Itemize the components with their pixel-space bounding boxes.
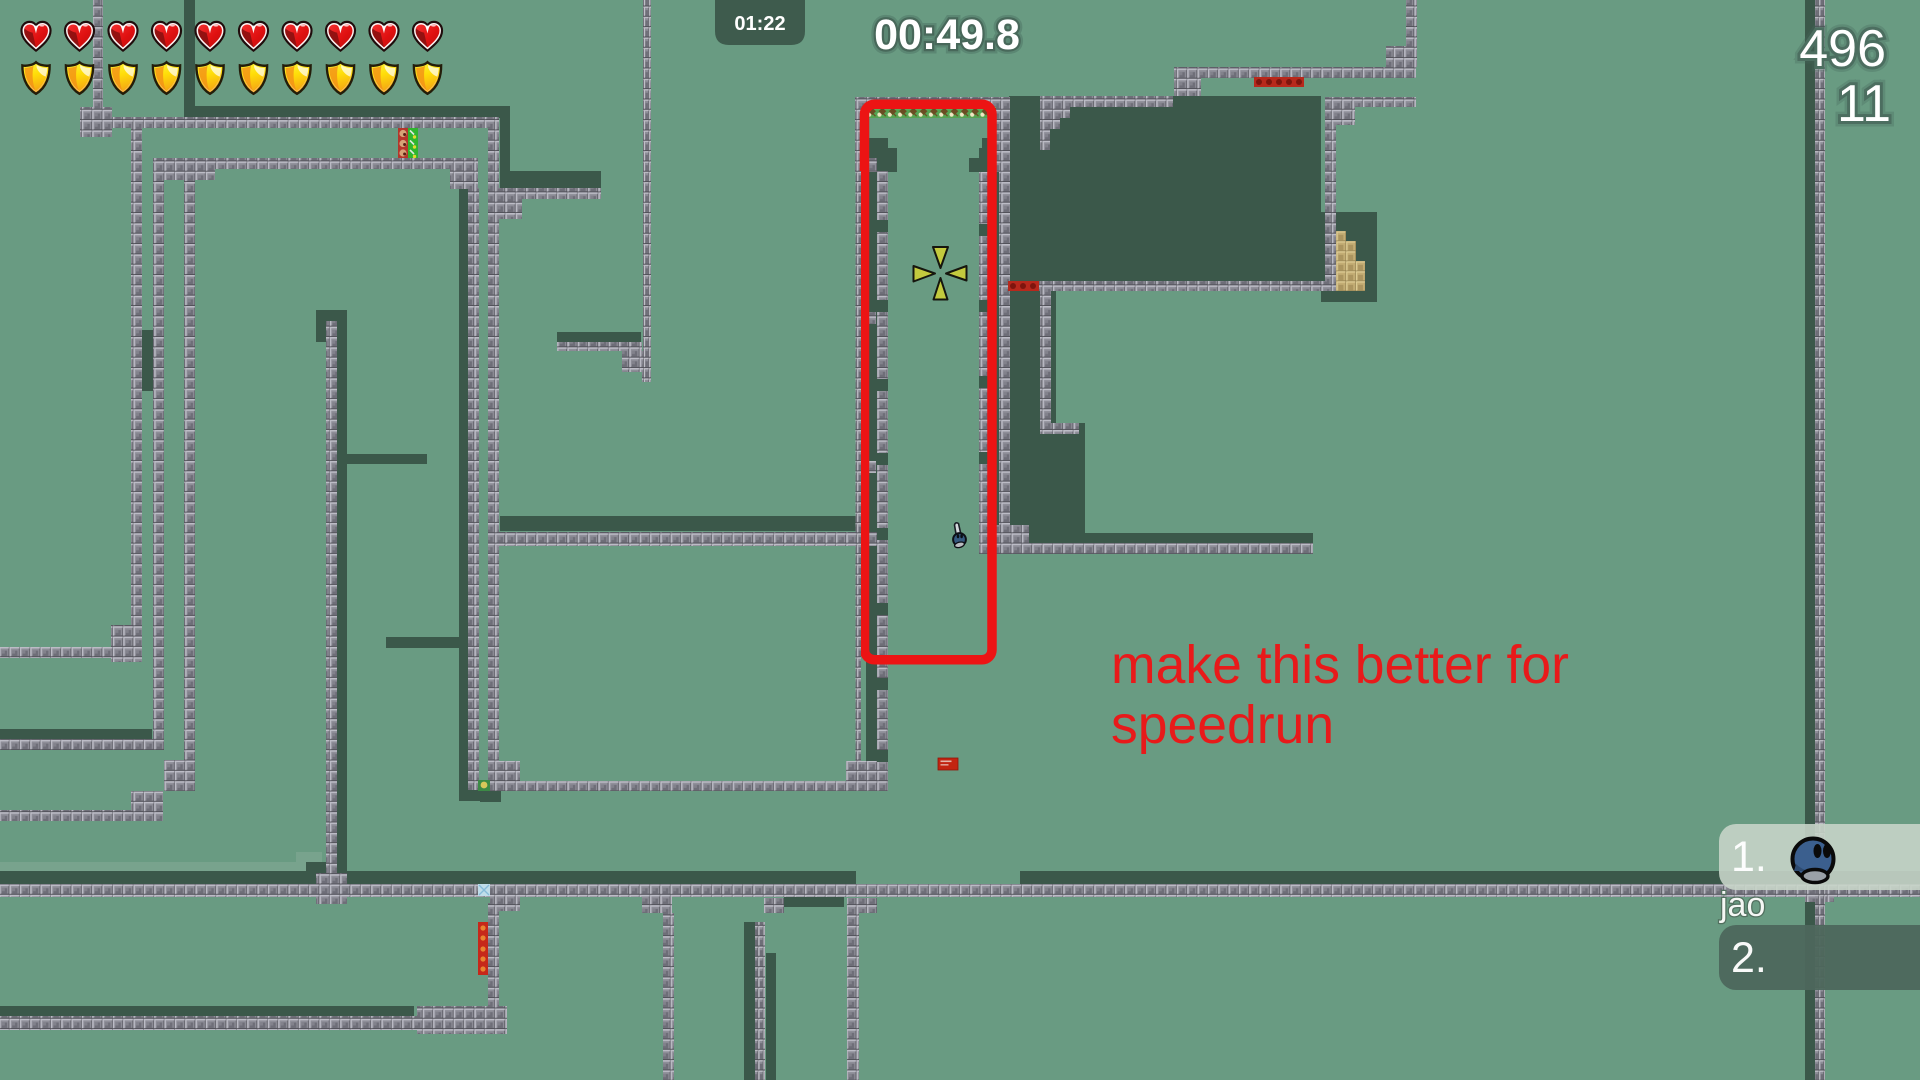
svg-text:496: 496 [1799,20,1886,78]
svg-text:speedrun: speedrun [1111,696,1334,755]
svg-text:2.: 2. [1731,934,1767,982]
svg-text:1.: 1. [1731,833,1767,881]
svg-text:00:49.8: 00:49.8 [874,11,1020,59]
svg-text:jao: jao [1719,886,1765,924]
svg-text:make this better for: make this better for [1111,636,1569,695]
svg-text:11: 11 [1837,75,1891,133]
svg-text:01:22: 01:22 [734,13,785,35]
